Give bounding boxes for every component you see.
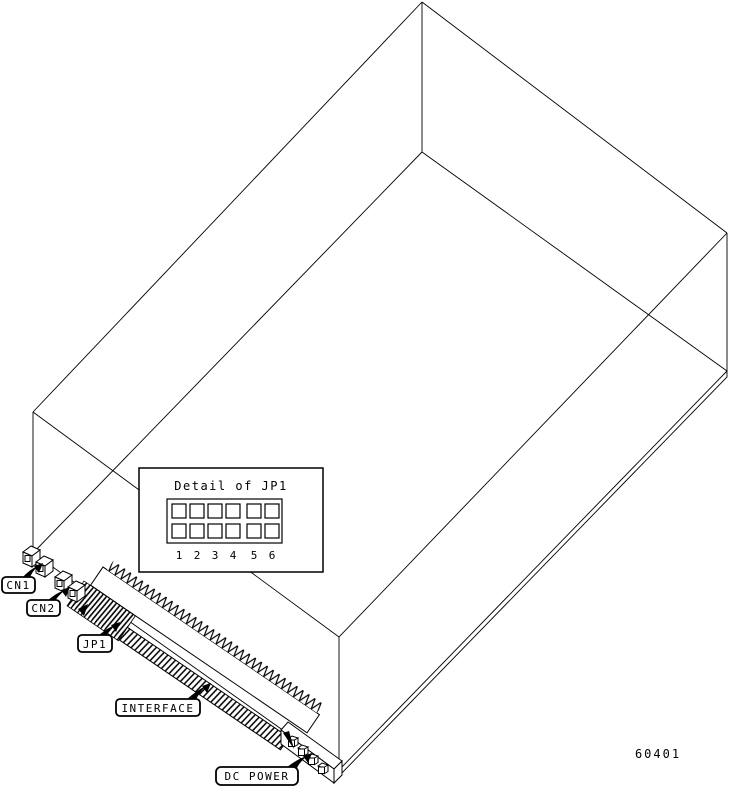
pin-label-3: 3 [212,549,219,562]
diagram-page: Detail of JP1 1 2 3 4 5 6 CN1 [0,0,731,793]
jp1-detail-inset: Detail of JP1 1 2 3 4 5 6 [139,468,323,572]
cn2-connector [55,571,85,602]
pin-label-6: 6 [269,549,276,562]
top-left-edge [33,2,422,412]
interface-connector [91,558,326,750]
label-interface: INTERFACE [121,702,194,715]
drive-rear-isometric-diagram: Detail of JP1 1 2 3 4 5 6 CN1 [0,0,731,793]
callout-cn1: CN1 [2,563,43,593]
inset-title: Detail of JP1 [174,479,287,493]
top-right-edge [422,2,727,233]
pin-label-1: 1 [176,549,183,562]
dc-pin-4 [318,763,328,774]
label-cn2: CN2 [31,602,55,615]
cn1-connector [23,546,53,577]
enclosure-wireframe [33,2,727,776]
pin-label-5: 5 [251,549,258,562]
label-dc-power: DC POWER [225,770,290,783]
dc-pin-2 [298,745,308,756]
pin-label-4: 4 [230,549,237,562]
front-right-bottom-edge [339,371,727,770]
label-jp1: JP1 [83,638,107,651]
pin-label-2: 2 [194,549,201,562]
callout-dc-power: DC POWER [216,753,312,785]
label-cn1: CN1 [6,579,30,592]
hidden-bottom-right-edge [422,152,727,371]
base-flange-edge [339,371,727,776]
figure-part-number: 60401 [635,747,681,761]
